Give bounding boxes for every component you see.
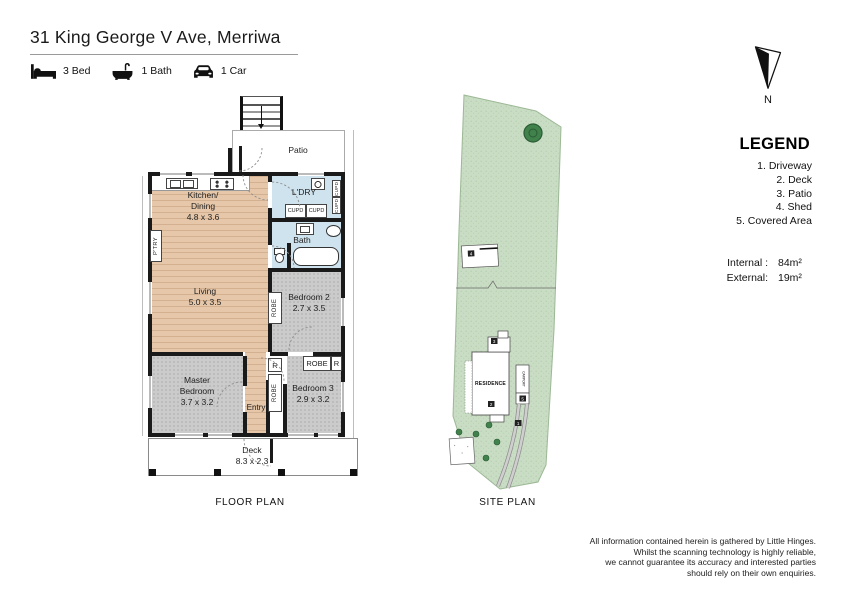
room-living-label: Living5.0 x 3.5	[189, 286, 222, 308]
site-plan-caption: SITE PLAN	[440, 497, 575, 508]
window	[175, 433, 203, 437]
legend-item: 1. Driveway	[736, 160, 812, 174]
disclaimer-line: should rely on their own enquiries.	[590, 568, 816, 579]
residence-porch	[465, 361, 472, 413]
legend-item: 3. Patio	[736, 188, 812, 202]
external-area-value: 19m²	[778, 271, 812, 286]
disclaimer-line: All information contained herein is gath…	[590, 536, 816, 547]
site-boundary	[453, 95, 561, 489]
wall-segment	[272, 218, 341, 222]
wall-segment	[243, 412, 247, 433]
feature-beds-label: 3 Bed	[63, 65, 90, 77]
toilet-icon	[275, 253, 284, 263]
toilet-icon	[326, 225, 341, 237]
svg-text:3: 3	[493, 339, 496, 344]
carport-label: CARPORT	[522, 371, 526, 387]
tree-icon	[524, 124, 542, 142]
north-label: N	[750, 94, 786, 106]
deck-post	[214, 469, 221, 476]
room-entry-floor	[245, 352, 266, 433]
window	[318, 433, 338, 437]
robe-box-short: R	[268, 358, 282, 372]
feature-baths-label: 1 Bath	[141, 65, 171, 77]
external-area-row: External: 19m²	[727, 271, 812, 286]
internal-area-value: 84m²	[778, 256, 812, 271]
window	[148, 282, 152, 314]
shed: 4	[461, 244, 498, 268]
car-icon	[193, 64, 214, 79]
wall-segment	[287, 243, 291, 268]
stair-arrow	[261, 106, 262, 125]
residence-label: RESIDENCE	[475, 381, 506, 387]
robe-box: ROBE	[268, 374, 282, 412]
wall-segment	[283, 384, 287, 433]
cupboard-box: CUPD	[306, 204, 327, 218]
feature-cars: 1 Car	[193, 64, 247, 79]
wall-segment	[152, 352, 243, 356]
room-entry-label: Entry	[247, 402, 266, 413]
area-summary: Internal : 84m² External: 19m²	[727, 256, 812, 285]
room-bath-label: Bath	[293, 235, 311, 246]
svg-text:1: 1	[517, 421, 520, 426]
legend-heading: LEGEND	[739, 135, 810, 154]
window	[288, 433, 314, 437]
feature-baths: 1 Bath	[111, 62, 171, 80]
wall-segment	[268, 176, 272, 182]
disclaimer: All information contained herein is gath…	[590, 536, 816, 578]
robe-box-short: R	[331, 356, 342, 371]
floor-plan: Patio Deck8.3 x 2.3	[140, 90, 375, 502]
disclaimer-line: we cannot guarantee its accuracy and int…	[590, 557, 816, 568]
feature-cars-label: 1 Car	[221, 65, 247, 77]
robe-box: ROBE	[303, 356, 331, 371]
residence-step	[498, 331, 508, 338]
pantry-label: P'TRY	[150, 230, 162, 262]
room-deck-label: Deck8.3 x 2.3	[236, 445, 269, 467]
vanity-icon	[296, 223, 314, 235]
disclaimer-line: Whilst the scanning technology is highly…	[590, 547, 816, 558]
feature-beds: 3 Bed	[31, 64, 90, 79]
room-kitchen-label: Kitchen/Dining4.8 x 3.6	[187, 190, 220, 223]
patio-wall	[228, 148, 232, 172]
door-leaf	[270, 439, 273, 463]
legend-list: 1. Driveway 2. Deck 3. Patio 4. Shed 5. …	[736, 160, 812, 229]
stair-arrow-head	[258, 124, 264, 129]
legend-item: 4. Shed	[736, 201, 812, 215]
cupboard-box: CUPD	[285, 204, 306, 218]
wall-segment	[272, 268, 341, 272]
door-leaf	[239, 146, 242, 172]
room-bedroom3-label: Bedroom 32.9 x 3.2	[292, 383, 334, 405]
deck-post	[149, 469, 156, 476]
floor-plan-caption: FLOOR PLAN	[140, 497, 360, 508]
feature-row: 3 Bed 1 Bath 1 Car	[31, 60, 247, 82]
cupboard-box-vertical: CUPD	[332, 197, 341, 214]
deck-post	[350, 469, 357, 476]
wall-segment	[243, 356, 247, 386]
cupboard-box-vertical: CUPD	[332, 180, 341, 197]
outbuilding	[449, 437, 475, 465]
external-area-label: External:	[727, 271, 768, 286]
sink-icon	[166, 178, 198, 189]
eave-line-right	[353, 130, 354, 476]
room-ldry-label: L'DRY	[292, 187, 316, 198]
room-master-label: MasterBedroom3.7 x 3.2	[180, 375, 215, 408]
window	[148, 376, 152, 408]
title-underline	[30, 54, 298, 55]
legend-item: 5. Covered Area	[736, 215, 812, 229]
room-patio-label: Patio	[288, 145, 307, 156]
stairs	[240, 96, 283, 132]
window	[208, 433, 232, 437]
svg-text:2: 2	[490, 402, 493, 407]
svg-text:5: 5	[521, 397, 524, 402]
bath-icon	[111, 62, 134, 80]
bed-icon	[31, 64, 56, 79]
robe-box: ROBE	[268, 292, 282, 324]
eave-line-left	[142, 176, 143, 436]
internal-area-row: Internal : 84m²	[727, 256, 812, 271]
wall-segment	[270, 352, 288, 356]
wall-segment	[268, 208, 272, 245]
window	[148, 194, 152, 218]
page-title: 31 King George V Ave, Merriwa	[30, 27, 281, 48]
north-arrow-icon	[750, 44, 786, 94]
window	[341, 298, 345, 326]
residence-deck-bump	[490, 415, 504, 422]
floorplan-page: 31 King George V Ave, Merriwa 3 Bed 1 Ba…	[0, 0, 842, 595]
window	[341, 382, 345, 412]
deck-post	[278, 469, 285, 476]
bathtub-icon	[293, 247, 339, 266]
window	[298, 172, 324, 176]
site-plan: 4 RESIDENCE CARPORT 3 2 5 1	[440, 85, 575, 497]
stove-icon	[210, 178, 234, 190]
legend-item: 2. Deck	[736, 174, 812, 188]
room-bedroom2-label: Bedroom 22.7 x 3.5	[288, 292, 330, 314]
internal-area-label: Internal :	[727, 256, 768, 271]
